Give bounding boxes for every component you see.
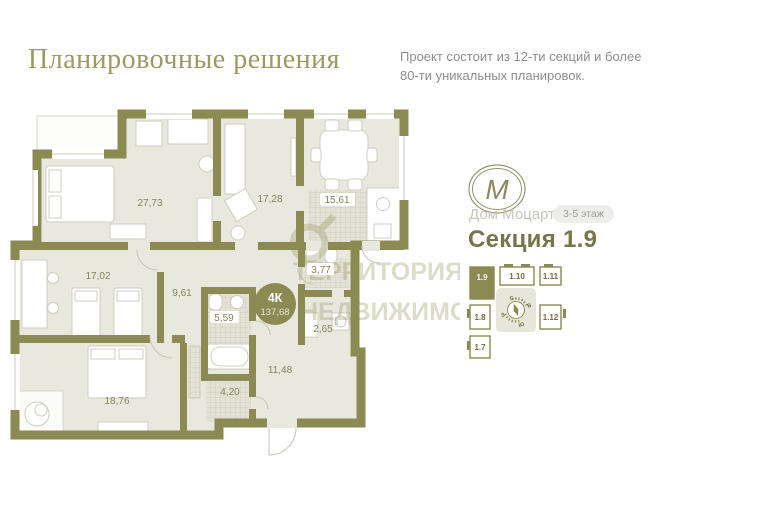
svg-text:4К: 4К — [268, 291, 283, 305]
svg-text:137,68: 137,68 — [260, 307, 289, 318]
minimap-label-1-11: 1.11 — [543, 272, 559, 281]
minimap-label-1-9: 1.9 — [476, 273, 488, 282]
room-area-label: 3,77 — [311, 265, 331, 276]
page-title: Планировочные решения — [28, 44, 340, 76]
minimap-label-1-12: 1.12 — [543, 313, 559, 322]
svg-text:НЕДВИЖИМОСТИ: НЕДВИЖИМОСТИ — [300, 298, 460, 326]
floors-badge: 3-5 этаж — [553, 205, 614, 223]
room-area-label: 4,20 — [220, 387, 240, 398]
section-minimap: 1.9 1.10 1.11 1.8 1.12 1.7 С В Ю З — [462, 254, 582, 362]
minimap-label-1-7: 1.7 — [474, 343, 486, 352]
room-area-label: 17,02 — [85, 271, 110, 282]
room-area-label: 15,61 — [324, 195, 349, 206]
floor-plan: ТЕРРИТОРИЯ НЕДВИЖИМОСТИ 27,73 17,28 15,6… — [10, 92, 460, 480]
project-name: Дом Моцарт — [469, 206, 555, 223]
balcony-top-left — [37, 116, 122, 154]
project-description: Проект состоит из 12-ти секций и более 8… — [400, 48, 650, 86]
room-area-label: 5,59 — [214, 313, 234, 324]
room-area-label: 18,76 — [104, 396, 129, 407]
minimap-label-1-8: 1.8 — [474, 313, 486, 322]
apartment-type-badge: 4К 137,68 — [254, 283, 296, 325]
project-description-line1: Проект состоит из 12-ти секций и более — [400, 49, 641, 64]
minimap-unit-1-9[interactable] — [470, 267, 494, 299]
logo-monogram: M — [485, 174, 509, 205]
minimap-label-1-10: 1.10 — [509, 272, 525, 281]
room-area-label: 11,48 — [268, 365, 293, 376]
entrance-gap — [267, 418, 297, 428]
room-area-label: 27,73 — [137, 198, 162, 209]
room-area-label: 9,61 — [172, 288, 192, 299]
page: Планировочные решения Проект состоит из … — [0, 0, 770, 510]
room-area-label: 2,65 — [313, 324, 333, 335]
room-area-label: 17,28 — [257, 194, 282, 205]
project-description-line2: 80-ти уникальных планировок. — [400, 68, 585, 83]
section-title: Секция 1.9 — [468, 226, 597, 254]
